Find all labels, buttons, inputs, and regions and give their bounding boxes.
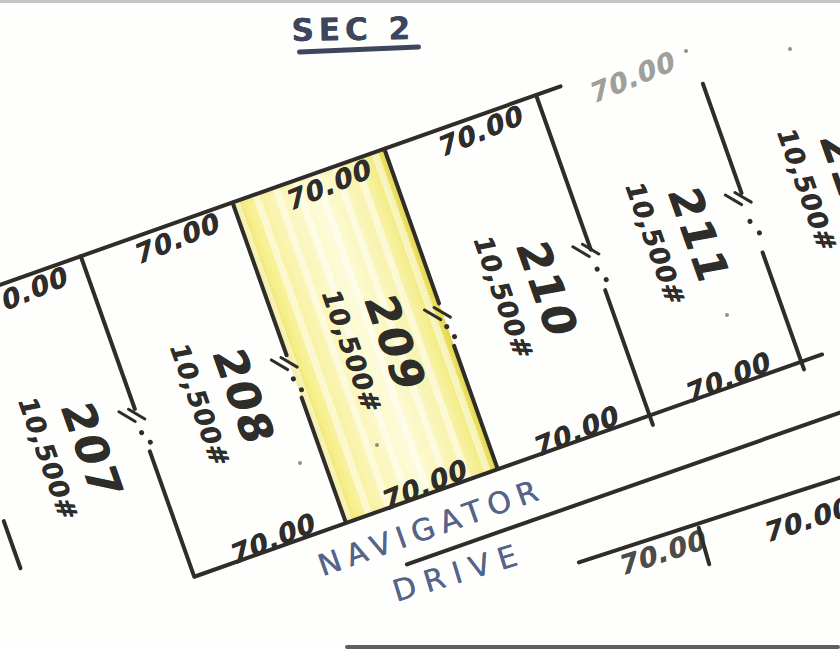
lot-212-label: 212 10,500# [772,117,840,253]
scan-speck [788,47,792,51]
lot-208-top-dimension: 70.00 [127,208,222,271]
scan-edge-top [0,0,840,3]
lot-211-top-dimension: 70.00 [583,46,678,109]
lot-211-label: 211 10,500# [620,170,742,306]
lot-210-top-dimension: 70.00 [431,100,526,163]
scan-speck [725,313,729,317]
lot-207-label: 207 10,500# [13,385,135,521]
scan-speck [298,461,302,465]
scan-speck [375,443,379,447]
section-title: SEC 2 [291,10,415,48]
scan-edge-bottom [345,645,840,649]
plat-map-scan: SEC 2 207 10,500# 70.00 208 10,500# 70.0… [0,0,840,649]
scan-speck [684,49,688,53]
lot-208-label: 208 10,500# [165,332,287,468]
